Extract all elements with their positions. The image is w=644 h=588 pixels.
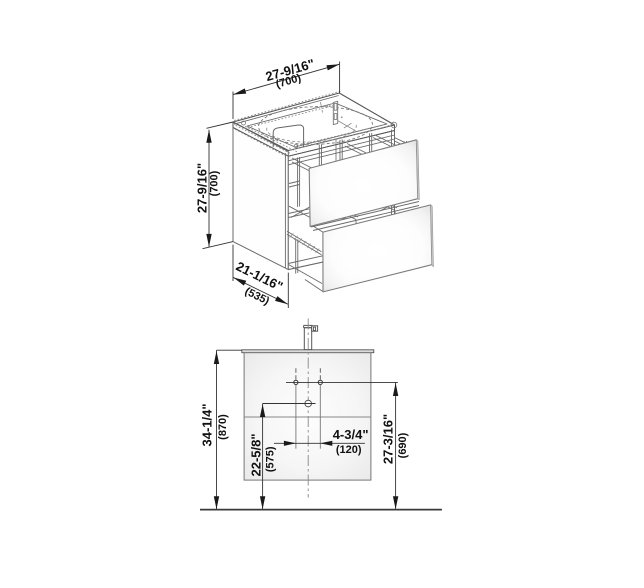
svg-text:22-5/8": 22-5/8" — [248, 433, 263, 476]
svg-text:(690): (690) — [397, 432, 409, 458]
svg-text:27-3/16": 27-3/16" — [380, 414, 395, 464]
svg-text:(870): (870) — [217, 414, 229, 440]
svg-text:(120): (120) — [336, 444, 362, 456]
svg-text:(700): (700) — [209, 170, 221, 196]
svg-text:4-3/4": 4-3/4" — [333, 427, 369, 442]
svg-text:(575): (575) — [265, 446, 277, 472]
svg-text:34-1/4": 34-1/4" — [200, 403, 215, 446]
svg-text:27-9/16": 27-9/16" — [195, 163, 210, 213]
